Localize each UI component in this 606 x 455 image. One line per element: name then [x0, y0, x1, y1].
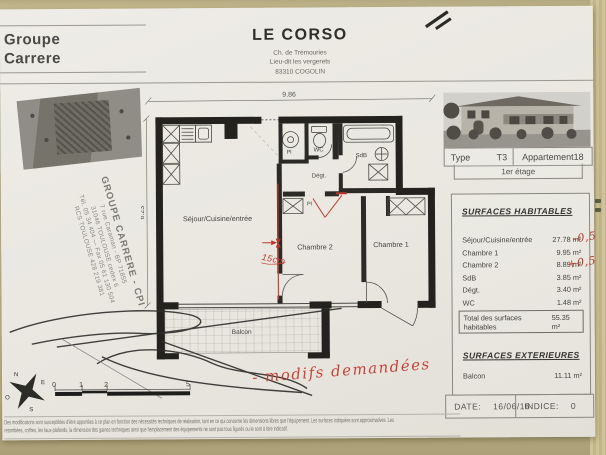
fixtures: [162, 124, 425, 217]
indice-label: INDICE:: [524, 401, 559, 411]
surface-row: Chambre 2 8.89 m² +0,5: [462, 260, 581, 270]
surface-row-value: 1.48 m²: [557, 297, 582, 306]
compass-o: O: [5, 395, 10, 401]
red-annotations: [261, 183, 348, 300]
surfaces-total-value: 55.35 m²: [552, 312, 579, 330]
corner-logo-mark: [424, 7, 454, 31]
surface-row: Séjour/Cuisine/entrée 27.78 m² -0,5: [462, 235, 581, 245]
room-label-pl1: Pl: [287, 150, 292, 156]
surface-row: Chambre 1 9.95 m²: [462, 247, 581, 257]
paper-sheet: Groupe Carrere LE CORSO Ch. de Trémourie…: [0, 6, 595, 441]
surface-row: WC 1.48 m²: [463, 297, 582, 307]
project-address: Ch. de Trémouries Lieu-dit les vergerets…: [200, 48, 400, 77]
company-line2: Carrere: [4, 50, 61, 69]
scanned-floor-plan-sheet: Groupe Carrere LE CORSO Ch. de Trémourie…: [0, 0, 606, 455]
date-indice-row: DATE: 16/06/16 INDICE: 0: [445, 394, 594, 419]
scale-0: 0: [52, 382, 56, 389]
surface-row-label: Dégt.: [462, 285, 480, 294]
header-rule-full: [0, 80, 593, 85]
surface-row-value: 3.85 m²: [557, 272, 582, 281]
surfaces-total-row: Total des surfaces habitables 55.35 m²: [459, 310, 584, 334]
surface-row-note: +0,5: [567, 254, 597, 271]
dimension-lines: [143, 95, 436, 309]
compass-n: N: [14, 372, 18, 378]
closet-chambre1: [388, 198, 425, 215]
room-label-sejour: Séjour/Cuisine/entrée: [183, 214, 252, 223]
dimension-width-label: 9.86: [282, 92, 296, 99]
construction-dashes: [250, 120, 280, 159]
apartment-number: 18: [574, 151, 584, 161]
disclaimer-block: Des modifications sont susceptibles d'êt…: [4, 414, 460, 439]
surface-row: Dégt. 3.40 m²: [462, 285, 581, 295]
type-value: T3: [497, 152, 508, 162]
floor-label: 1er étage: [501, 167, 535, 176]
building-render-photo: [443, 92, 590, 148]
washing-machine-icon: [283, 132, 299, 148]
surface-row-label: Séjour/Cuisine/entrée: [462, 235, 532, 244]
exterior-row-label: Balcon: [463, 371, 485, 380]
surface-row-label: Chambre 2: [462, 260, 498, 269]
header-rule-mid: [0, 71, 146, 73]
surface-row-label: SdB: [462, 273, 476, 282]
surface-row-note: -0,5: [572, 229, 597, 245]
room-label-sdb: SdB: [356, 153, 367, 159]
scale-bar: 0 1 2 5: [47, 377, 197, 404]
company-logo: Groupe Carrere: [4, 31, 61, 69]
room-label-chambre1: Chambre 1: [373, 240, 409, 249]
bathtub-icon: [343, 125, 393, 142]
project-title: LE CORSO: [200, 26, 400, 45]
surfaces-total-label: Total des surfaces habitables: [464, 313, 552, 332]
exterior-row-value: 11.11 m²: [554, 371, 582, 380]
compass-rose: N E O S: [4, 366, 50, 412]
address-line3: 83310 COGOLIN: [200, 67, 400, 78]
compass-e: E: [41, 380, 45, 386]
aerial-roof-block: [54, 100, 112, 154]
aerial-site-photo: [16, 88, 145, 170]
scale-1: 1: [79, 382, 83, 389]
compass-s: S: [29, 407, 33, 412]
edge-mark: [595, 208, 601, 212]
room-label-chambre2: Chambre 2: [297, 242, 333, 251]
indice-value: 0: [571, 401, 576, 411]
surfaces-exterieures-title: SURFACES EXTERIEURES: [463, 350, 580, 361]
kitchen-sink: [179, 125, 195, 142]
header-rule-top: [0, 24, 146, 26]
date-label: DATE:: [454, 401, 481, 411]
floor-row: 1er étage: [454, 164, 583, 180]
surface-row-value: 3.40 m²: [557, 285, 582, 294]
dimension-height-label: 6.23: [140, 206, 146, 220]
surfaces-panel: SURFACES HABITABLES Séjour/Cuisine/entré…: [451, 193, 591, 396]
room-label-pl2: Pl: [307, 201, 312, 207]
surface-row-value: 9.95 m²: [556, 247, 581, 256]
toilet-icon: [314, 133, 326, 147]
edge-mark: [595, 199, 601, 203]
surface-row-label: Chambre 1: [462, 248, 498, 257]
apartment-label: Appartement: [522, 151, 574, 161]
scale-2: 2: [104, 382, 108, 389]
exterior-surface-row: Balcon 11.11 m²: [463, 371, 582, 381]
scale-5: 5: [186, 381, 190, 388]
surfaces-habitables-title: SURFACES HABITABLES: [462, 206, 572, 217]
type-label: Type: [451, 152, 471, 162]
room-label-degt: Dégt.: [312, 173, 327, 179]
company-line1: Groupe: [4, 31, 61, 50]
room-label-wc: WC: [314, 147, 325, 153]
surface-row-label: WC: [463, 298, 475, 307]
surface-row: SdB 3.85 m²: [462, 272, 581, 282]
